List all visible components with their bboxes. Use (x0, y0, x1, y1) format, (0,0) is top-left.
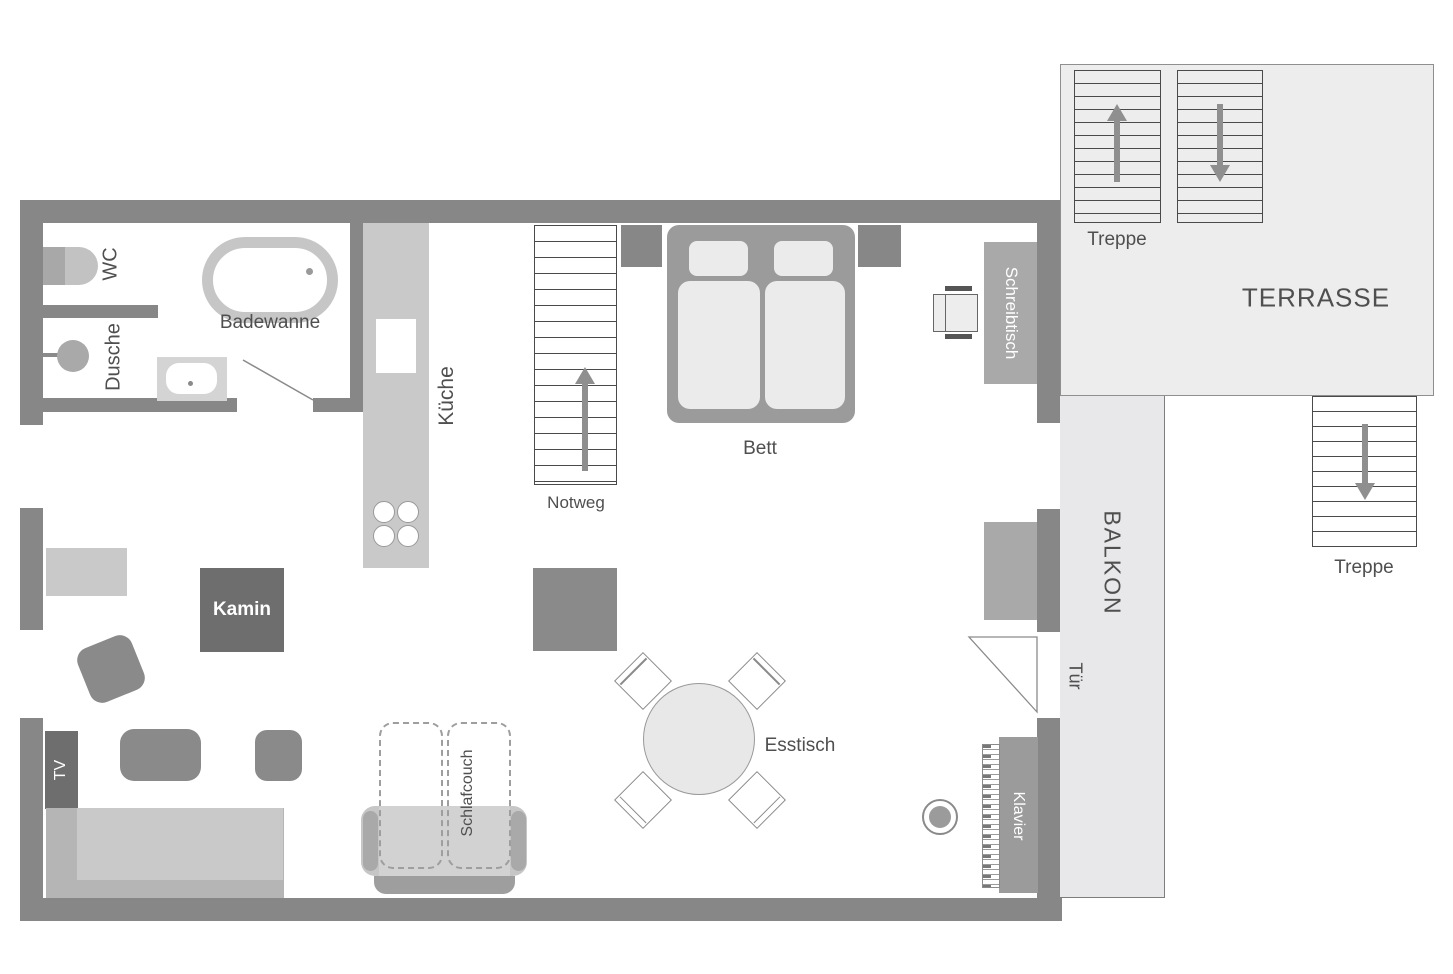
wall-pillar (984, 522, 1037, 620)
fold-out-bed-right (447, 722, 511, 869)
toilet-tank (43, 247, 65, 285)
sleeper-couch-armrest-right (511, 811, 526, 871)
balkon-label: BALKON (1099, 510, 1126, 615)
tuer-label: Tür (1065, 663, 1086, 690)
desk-chair (933, 294, 978, 332)
stove-burner (397, 501, 419, 523)
schreibtisch-label: Schreibtisch (1001, 267, 1021, 360)
wall-stub-bed-right (858, 225, 901, 267)
notweg-label: Notweg (547, 493, 605, 513)
washbasin-bowl (166, 363, 217, 394)
dining-table (643, 683, 755, 795)
wall-stub-bed-left (621, 225, 662, 267)
wall-top (20, 200, 1060, 223)
wall-right-upper (1037, 223, 1060, 423)
wc-label: WC (100, 247, 123, 280)
bed-pillow-right (774, 241, 833, 276)
wall-bathroom-divider (43, 305, 158, 318)
klavier-label: Klavier (1009, 792, 1027, 841)
treppe-terrasse-label: Treppe (1087, 229, 1147, 251)
desk-chair-armrest (945, 334, 972, 339)
bed-mattress-left (678, 281, 760, 409)
arrow-up-icon (1106, 104, 1128, 182)
bathtub (202, 237, 338, 323)
wall-bathroom-bottom-right (313, 398, 363, 412)
arrow-up-icon (574, 367, 596, 471)
wall-left-lower (20, 718, 43, 900)
piano-stool-seat (929, 806, 951, 828)
piano-keyboard (982, 744, 1000, 888)
dusche-label: Dusche (103, 323, 126, 391)
arrow-down-icon (1209, 104, 1231, 182)
sleeper-couch-backrest (374, 876, 515, 894)
bed-pillow-left (689, 241, 748, 276)
armchair (73, 631, 149, 707)
bathtub-drain (306, 268, 313, 275)
bett-label: Bett (743, 438, 777, 460)
wall-left-upper (20, 223, 43, 425)
esstisch-label: Esstisch (765, 735, 836, 757)
wall-right-middle (1037, 509, 1060, 632)
fireplace-label: Kamin (213, 599, 271, 621)
fireplace: Kamin (200, 568, 284, 652)
stove-burner (373, 525, 395, 547)
terrasse-label: TERRASSE (1242, 283, 1390, 314)
column-block (533, 568, 617, 651)
badewanne-label: Badewanne (220, 312, 320, 334)
desk-chair-armrest (945, 286, 972, 291)
fold-out-bed-left (379, 722, 443, 869)
balkon-area (1060, 396, 1165, 898)
shower-head (57, 340, 89, 372)
ottoman (255, 730, 302, 781)
toilet-bowl (60, 247, 98, 285)
tv-label: TV (52, 760, 70, 780)
treppe-aussen-label: Treppe (1334, 557, 1394, 579)
wall-right-lower (1037, 718, 1060, 900)
coffee-table (120, 729, 201, 781)
stove-burner (397, 525, 419, 547)
wall-left-middle (20, 508, 43, 630)
schlafcouch-label: Schlafcouch (459, 749, 477, 836)
bed-mattress-right (765, 281, 845, 409)
arrow-down-icon (1354, 424, 1376, 500)
stove-burner (373, 501, 395, 523)
sideboard (46, 548, 127, 596)
balcony-door-swing (969, 637, 1037, 712)
wall-bottom (20, 898, 1062, 921)
kitchen-sink (376, 319, 416, 373)
kueche-label: Küche (435, 366, 459, 426)
bathroom-door-swing (243, 360, 313, 400)
washbasin-tap (188, 381, 193, 386)
corner-couch-seat (77, 808, 283, 880)
sleeper-couch-armrest-left (363, 811, 378, 871)
wall-bathroom-right (350, 223, 363, 412)
floorplan-canvas: Kamin WC Dusche Badewanne Küche Notweg B… (0, 0, 1453, 974)
